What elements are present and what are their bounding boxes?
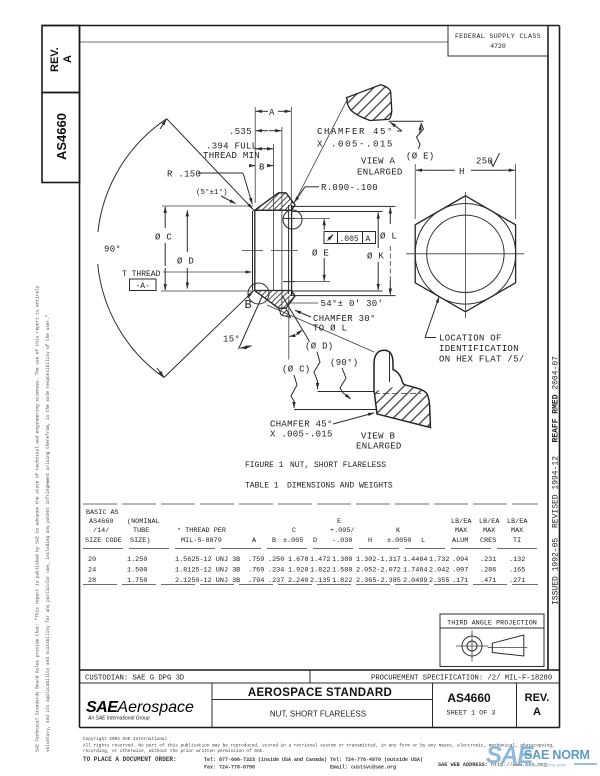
- svg-text:SAEAerospace: SAEAerospace: [86, 699, 194, 716]
- svg-text:Ø K: Ø K: [367, 252, 384, 262]
- svg-text:T THREAD: T THREAD: [122, 270, 161, 279]
- svg-text:ENLARGED: ENLARGED: [356, 442, 402, 452]
- svg-text:(Ø E): (Ø E): [406, 152, 435, 162]
- svg-text:.165: .165: [509, 567, 525, 575]
- svg-text:/14/: /14/: [93, 527, 109, 535]
- svg-text:2.042: 2.042: [429, 567, 449, 575]
- svg-text:TO PLACE A DOCUMENT ORDER:: TO PLACE A DOCUMENT ORDER:: [83, 756, 177, 763]
- svg-text:.535: .535: [229, 127, 252, 137]
- svg-text:A: A: [366, 235, 371, 244]
- svg-text:1.580: 1.580: [332, 567, 352, 575]
- svg-text:1.472: 1.472: [310, 556, 330, 564]
- svg-text:Tel: 724-776-4970 (outside USA: Tel: 724-776-4970 (outside USA): [330, 757, 423, 763]
- svg-text:CUSTODIAN: SAE G DPG 3D: CUSTODIAN: SAE G DPG 3D: [85, 675, 184, 683]
- svg-text:15°: 15°: [223, 335, 240, 345]
- svg-text:REV.: REV.: [49, 47, 61, 72]
- svg-text:AS4660: AS4660: [447, 691, 491, 705]
- svg-text:.234: .234: [268, 567, 284, 575]
- svg-text:1.8125-12 UNJ 3B: 1.8125-12 UNJ 3B: [175, 567, 240, 575]
- svg-text:R .150: R .150: [167, 170, 201, 180]
- svg-text:MAX: MAX: [483, 527, 495, 535]
- svg-text:1.250: 1.250: [127, 556, 147, 564]
- svg-text:-.030: -.030: [332, 537, 352, 545]
- svg-text:NUT, SHORT FLARELESS: NUT, SHORT FLARELESS: [270, 710, 366, 719]
- svg-text:2.365-2.385: 2.365-2.385: [356, 577, 401, 585]
- svg-text:SAE Technical Standards Board: SAE Technical Standards Board Rules prov…: [36, 285, 41, 752]
- svg-text:TO Ø L: TO Ø L: [313, 324, 347, 334]
- svg-text:1.500: 1.500: [127, 567, 147, 575]
- svg-text:A: A: [269, 108, 275, 118]
- svg-text:.094: .094: [452, 556, 468, 564]
- svg-text:20: 20: [88, 556, 96, 564]
- svg-text:voluntary, and its applicabili: voluntary, and its applicability and sui…: [46, 314, 51, 752]
- svg-text:Copyright 2004 SAE Internation: Copyright 2004 SAE International: [83, 737, 168, 742]
- svg-text:LB/EA: LB/EA: [451, 518, 472, 526]
- svg-text:TABLE 1: TABLE 1: [245, 482, 279, 491]
- svg-text:LB/EA: LB/EA: [507, 518, 528, 526]
- svg-text:AS4660: AS4660: [54, 113, 69, 160]
- svg-text:X .005-.015: X .005-.015: [317, 140, 394, 150]
- svg-text:90°: 90°: [104, 245, 121, 255]
- svg-text:PROCUREMENT SPECIFICATION: /2/: PROCUREMENT SPECIFICATION: /2/ MIL-F-182…: [371, 675, 552, 683]
- svg-text:(Ø C): (Ø C): [282, 365, 311, 375]
- svg-text:.794: .794: [248, 577, 264, 585]
- svg-text:THIRD ANGLE PROJECTION: THIRD ANGLE PROJECTION: [447, 620, 537, 628]
- svg-text:D: D: [313, 537, 317, 545]
- svg-text:2.0499: 2.0499: [403, 577, 427, 585]
- svg-text:.171: .171: [452, 577, 468, 585]
- svg-text:REV.: REV.: [525, 692, 550, 704]
- svg-text:.005: .005: [340, 235, 359, 244]
- svg-text:.769: .769: [248, 567, 264, 575]
- svg-text:2.355: 2.355: [429, 577, 449, 585]
- svg-text:L: L: [421, 537, 425, 545]
- svg-text:SAE NORM: SAE NORM: [524, 748, 590, 762]
- svg-text:54°± 0' 30': 54°± 0' 30': [321, 299, 384, 309]
- svg-text:2.052-2.072: 2.052-2.072: [356, 567, 401, 575]
- svg-text:±.0050: ±.0050: [387, 537, 411, 545]
- svg-text:R.090-.100: R.090-.100: [321, 183, 378, 193]
- svg-text:All rights reserved. No part o: All rights reserved. No part of this pub…: [83, 744, 555, 749]
- svg-text:.231: .231: [480, 556, 496, 564]
- svg-text:H: H: [368, 537, 372, 545]
- svg-text:.237: .237: [268, 577, 284, 585]
- svg-text:.759: .759: [248, 556, 264, 564]
- svg-text:ISSUED 1992-05: ISSUED 1992-05: [552, 538, 561, 605]
- svg-text:LOCATION OF: LOCATION OF: [439, 334, 502, 344]
- svg-text:24: 24: [88, 567, 96, 575]
- svg-text:1.7464: 1.7464: [403, 567, 427, 575]
- svg-text:.394 FULL: .394 FULL: [206, 142, 257, 152]
- svg-text:AS4660: AS4660: [89, 518, 113, 526]
- svg-text:B: B: [259, 162, 265, 172]
- svg-text:+.005/: +.005/: [330, 527, 354, 535]
- svg-text:VIEW A: VIEW A: [361, 157, 396, 167]
- svg-text:CHAMFER 45°: CHAMFER 45°: [270, 420, 333, 430]
- svg-text:C: C: [292, 527, 296, 535]
- svg-text:2.240: 2.240: [288, 577, 308, 585]
- svg-text:MAX: MAX: [511, 527, 523, 535]
- svg-text:ENLARGED: ENLARGED: [357, 168, 403, 178]
- svg-text:1.928: 1.928: [288, 567, 308, 575]
- svg-text:TI: TI: [513, 537, 521, 545]
- svg-text:E: E: [337, 518, 341, 526]
- svg-text:(90°): (90°): [330, 358, 359, 368]
- svg-text:ALUM: ALUM: [452, 537, 468, 545]
- svg-text:Ø D: Ø D: [177, 257, 194, 267]
- svg-text:2.135: 2.135: [310, 577, 330, 585]
- svg-text:www.saenorm.com: www.saenorm.com: [524, 763, 566, 768]
- svg-text:SIZE): SIZE): [130, 537, 150, 545]
- svg-text:Tel: 877-606-7323 (inside USA: Tel: 877-606-7323 (inside USA and Canada…: [204, 757, 327, 763]
- svg-text:1.4464: 1.4464: [403, 556, 427, 564]
- svg-text:1.5625-12 UNJ 3B: 1.5625-12 UNJ 3B: [175, 556, 240, 564]
- svg-text:SHEET 1 OF 3: SHEET 1 OF 3: [447, 710, 496, 718]
- svg-text:An SAE International Group: An SAE International Group: [87, 716, 150, 722]
- svg-text:A: A: [62, 55, 74, 63]
- svg-text:1.678: 1.678: [288, 556, 308, 564]
- svg-text:CHAMFER 45°: CHAMFER 45°: [317, 127, 394, 137]
- svg-text:TUBE: TUBE: [133, 527, 149, 535]
- svg-text:Email: custsvc@sae.org: Email: custsvc@sae.org: [330, 765, 396, 771]
- svg-text:-A-: -A-: [136, 282, 150, 291]
- svg-text:H: H: [459, 167, 465, 177]
- svg-text:CHAMFER 30°: CHAMFER 30°: [313, 314, 376, 324]
- svg-text:Ø E: Ø E: [312, 249, 329, 259]
- svg-text:MAX: MAX: [455, 527, 467, 535]
- svg-text:1.732: 1.732: [429, 556, 449, 564]
- svg-text:B: B: [245, 298, 252, 312]
- svg-text:1.380: 1.380: [332, 556, 352, 564]
- svg-text:(Ø D): (Ø D): [305, 342, 334, 352]
- svg-text:.271: .271: [509, 577, 525, 585]
- svg-text:A: A: [533, 706, 541, 718]
- svg-text:THREAD MIN: THREAD MIN: [203, 151, 260, 161]
- svg-text:CRES: CRES: [480, 537, 496, 545]
- svg-text:(5°±1°): (5°±1°): [196, 188, 228, 197]
- svg-text:MIL-S-8879: MIL-S-8879: [181, 537, 222, 545]
- svg-text:Ø C: Ø C: [155, 233, 172, 243]
- svg-text:* THREAD PER: * THREAD PER: [177, 527, 226, 535]
- svg-text:X .005-.015: X .005-.015: [270, 430, 333, 440]
- svg-text:±.005: ±.005: [283, 537, 303, 545]
- svg-text:.286: .286: [480, 567, 496, 575]
- svg-text:1.822: 1.822: [310, 567, 330, 575]
- svg-text:4720: 4720: [490, 43, 506, 50]
- svg-text:AEROSPACE STANDARD: AEROSPACE STANDARD: [248, 687, 392, 699]
- svg-text:FEDERAL SUPPLY CLASS: FEDERAL SUPPLY CLASS: [455, 33, 541, 40]
- svg-text:BASIC AS: BASIC AS: [86, 509, 119, 517]
- svg-text:(NOMINAL: (NOMINAL: [127, 518, 160, 526]
- svg-text:VIEW B: VIEW B: [361, 432, 396, 442]
- svg-text:recording, or otherwise, witho: recording, or otherwise, without the pri…: [83, 749, 265, 754]
- svg-text:SIZE CODE: SIZE CODE: [85, 537, 122, 545]
- svg-text:LB/EA: LB/EA: [479, 518, 500, 526]
- svg-text:.132: .132: [509, 556, 525, 564]
- svg-text:IDENTIFICATION: IDENTIFICATION: [439, 344, 519, 354]
- svg-text:Ø L: Ø L: [380, 232, 397, 242]
- svg-text:NUT, SHORT FLARELESS: NUT, SHORT FLARELESS: [290, 461, 386, 470]
- svg-text:.250: .250: [268, 556, 284, 564]
- svg-text:B: B: [272, 537, 276, 545]
- svg-text:REAFF RMED 2004-07: REAFF RMED 2004-07: [552, 356, 561, 443]
- svg-text:FIGURE 1: FIGURE 1: [245, 461, 284, 470]
- svg-text:.471: .471: [480, 577, 496, 585]
- svg-text:REVISED 1994-12: REVISED 1994-12: [552, 456, 561, 528]
- svg-text:DIMENSIONS AND WEIGHTS: DIMENSIONS AND WEIGHTS: [287, 482, 393, 491]
- svg-text:2.1250-12 UNJ 3B: 2.1250-12 UNJ 3B: [175, 577, 240, 585]
- svg-text:28: 28: [88, 577, 96, 585]
- svg-text:1.822: 1.822: [332, 577, 352, 585]
- svg-text:ON HEX FLAT /5/: ON HEX FLAT /5/: [439, 355, 525, 365]
- svg-text:.097: .097: [452, 567, 468, 575]
- svg-text:1.302-1.317: 1.302-1.317: [356, 556, 401, 564]
- svg-text:1.750: 1.750: [127, 577, 147, 585]
- svg-text:Fax: 724-776-0790: Fax: 724-776-0790: [204, 765, 255, 771]
